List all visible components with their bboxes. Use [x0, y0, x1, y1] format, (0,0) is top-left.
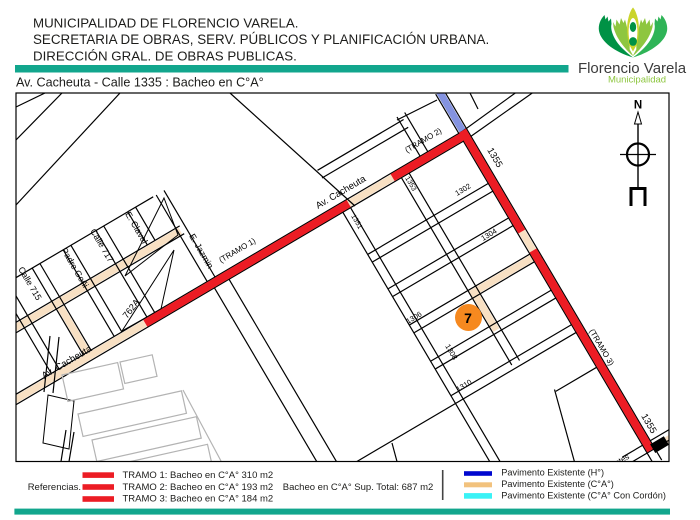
svg-text:Municipalidad: Municipalidad: [608, 75, 666, 86]
svg-text:7: 7: [464, 310, 472, 326]
svg-text:TRAMO 2: Bacheo en C°A° 193 m2: TRAMO 2: Bacheo en C°A° 193 m2: [123, 482, 274, 493]
svg-text:TRAMO 3: Bacheo en C°A° 184 m2: TRAMO 3: Bacheo en C°A° 184 m2: [123, 494, 274, 505]
svg-text:MUNICIPALIDAD DE FLORENCIO VAR: MUNICIPALIDAD DE FLORENCIO VARELA.: [33, 16, 299, 31]
svg-text:DIRECCIÓN GRAL. DE OBRAS PUBLI: DIRECCIÓN GRAL. DE OBRAS PUBLICAS.: [33, 49, 297, 64]
svg-text:Av. Cacheuta - Calle 1335 : Ba: Av. Cacheuta - Calle 1335 : Bacheo en C°…: [16, 76, 264, 90]
svg-text:SECRETARIA DE OBRAS, SERV. PÚB: SECRETARIA DE OBRAS, SERV. PÚBLICOS Y PL…: [33, 32, 489, 47]
svg-text:Referencias.: Referencias.: [28, 482, 81, 493]
svg-text:Bacheo en C°A° Sup. Total: 687: Bacheo en C°A° Sup. Total: 687 m2: [283, 482, 434, 493]
svg-text:N: N: [634, 100, 642, 112]
svg-text:Pavimento Existente (H°): Pavimento Existente (H°): [501, 468, 604, 478]
svg-text:TRAMO 1: Bacheo en C°A° 310 m2: TRAMO 1: Bacheo en C°A° 310 m2: [123, 470, 274, 481]
svg-text:Pavimento Existente (C°A°): Pavimento Existente (C°A°): [501, 479, 614, 489]
svg-text:Pavimento Existente (C°A° Con: Pavimento Existente (C°A° Con Cordón): [501, 491, 666, 501]
